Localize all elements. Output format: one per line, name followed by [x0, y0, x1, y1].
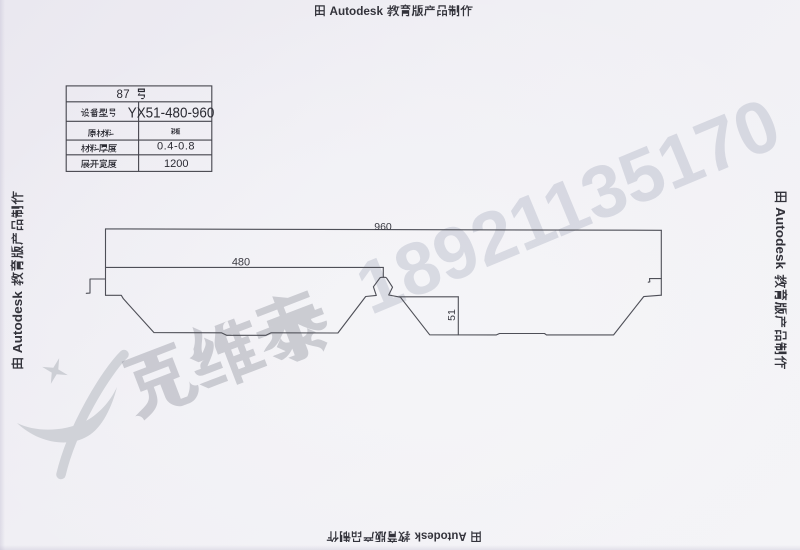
svg-text:Autodesk: Autodesk — [10, 290, 25, 353]
svg-text:87: 87 — [117, 89, 130, 101]
svg-text:Autodesk: Autodesk — [773, 207, 788, 270]
svg-text:YX51-480-960: YX51-480-960 — [128, 105, 215, 122]
svg-text:480: 480 — [232, 257, 250, 269]
svg-text:Autodesk: Autodesk — [330, 4, 384, 18]
svg-text:51: 51 — [446, 309, 458, 321]
svg-text:1200: 1200 — [164, 158, 188, 170]
svg-text:960: 960 — [374, 221, 392, 233]
svg-text:0.4-0.8: 0.4-0.8 — [157, 141, 195, 153]
svg-text:Autodesk: Autodesk — [414, 530, 466, 543]
